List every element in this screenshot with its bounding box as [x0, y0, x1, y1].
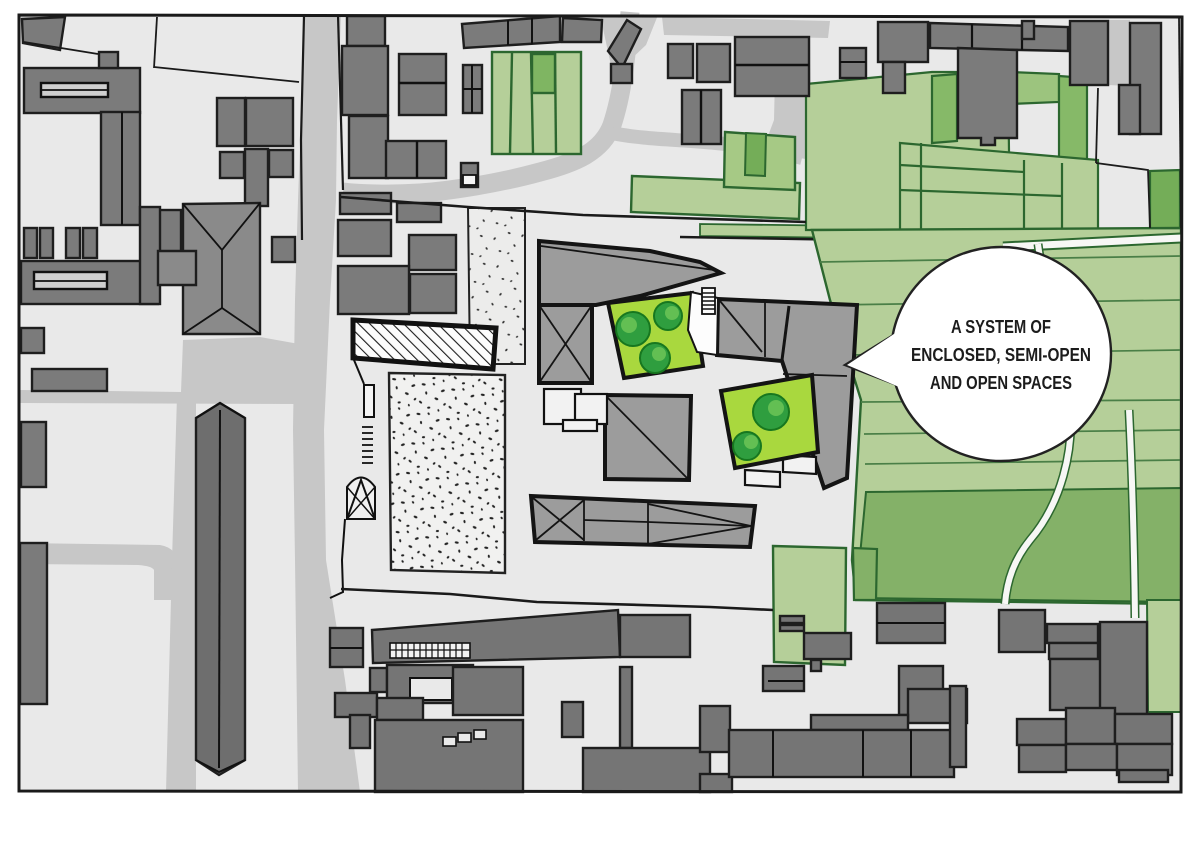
- svg-text:ENCLOSED, SEMI-OPEN: ENCLOSED, SEMI-OPEN: [911, 345, 1091, 365]
- svg-text:A SYSTEM OF: A SYSTEM OF: [951, 317, 1051, 337]
- svg-text:AND OPEN SPACES: AND OPEN SPACES: [930, 373, 1072, 393]
